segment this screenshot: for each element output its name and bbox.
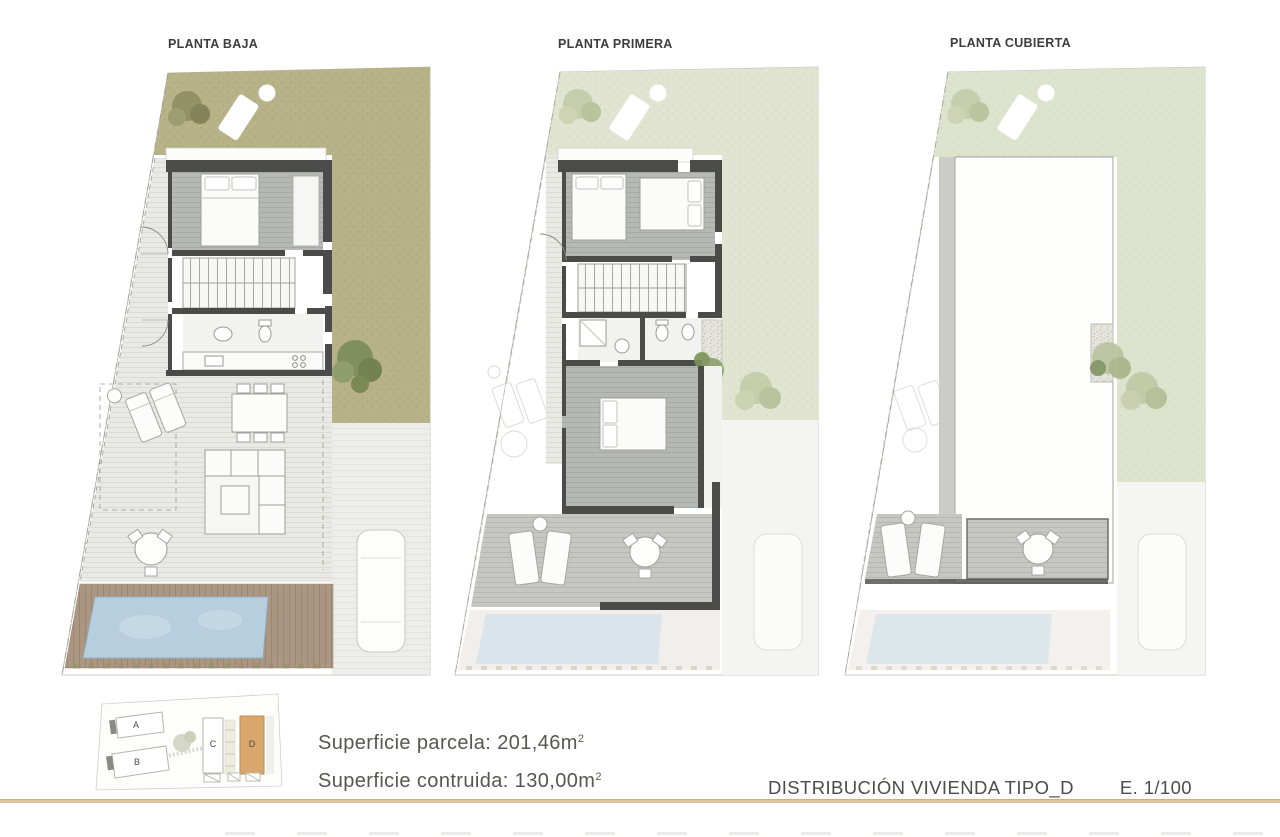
lot-divider <box>225 720 235 774</box>
plan-title-primera: PLANTA PRIMERA <box>558 37 673 51</box>
wall <box>865 579 1108 584</box>
sink <box>615 339 629 353</box>
bed <box>572 174 626 240</box>
plan-title-cubierta: PLANTA CUBIERTA <box>950 36 1071 50</box>
lot-c: C <box>203 718 223 773</box>
plan-title-baja: PLANTA BAJA <box>168 37 258 51</box>
toilet <box>656 325 668 341</box>
pool-area-faded <box>458 610 720 670</box>
car-faded <box>754 534 802 650</box>
plan-drawing-primera <box>450 62 825 682</box>
toilet <box>259 326 271 342</box>
kitchen-sink <box>205 356 223 366</box>
bed <box>640 178 704 230</box>
lot-d-highlighted: D <box>240 716 264 774</box>
roof-terrace <box>967 519 1108 579</box>
side-balcony <box>546 155 562 464</box>
lot-b-label: B <box>134 757 140 767</box>
kitchen <box>183 352 323 370</box>
surface-legend: Superficie parcela: 201,46m2 Superficie … <box>318 722 602 798</box>
bathrooms <box>578 318 715 362</box>
car <box>357 530 405 652</box>
bathroom <box>183 314 323 352</box>
pool <box>83 597 268 658</box>
car-faded <box>1138 534 1186 650</box>
pool-area <box>65 584 333 668</box>
surface-built-line: Superficie contruida: 130,00m2 <box>318 760 602 798</box>
pool-area-faded <box>848 610 1110 670</box>
lot-a-label: A <box>133 720 139 730</box>
coffee-table <box>221 486 249 514</box>
sofa-set <box>205 450 285 534</box>
sheet-scale: E. 1/100 <box>1120 777 1192 799</box>
bed <box>201 174 259 246</box>
dining-set <box>232 384 287 442</box>
lot-c-label: C <box>210 739 217 749</box>
plan-drawing-baja <box>55 62 440 682</box>
bed <box>600 398 666 450</box>
sheet-edge-dashes <box>225 832 1280 835</box>
sheet-title: DISTRIBUCIÓN VIVIENDA TIPO_D <box>768 777 1074 799</box>
wall <box>166 160 332 172</box>
lot-d-label: D <box>249 739 256 749</box>
surface-parcel-line: Superficie parcela: 201,46m2 <box>318 722 602 760</box>
bidet <box>682 324 694 340</box>
title-block-rule <box>0 799 1280 803</box>
plan-drawing-cubierta <box>840 62 1212 682</box>
site-key-plan: A B C D <box>82 686 297 804</box>
roof-overhang <box>166 148 326 162</box>
plan-sheet: PLANTA BAJA PLANTA PRIMERA PLANTA CUBIER… <box>0 0 1280 837</box>
title-block: DISTRIBUCIÓN VIVIENDA TIPO_D E. 1/100 <box>768 777 1192 799</box>
closet <box>293 176 319 246</box>
roof-overhang <box>558 148 693 162</box>
sink <box>214 327 232 341</box>
